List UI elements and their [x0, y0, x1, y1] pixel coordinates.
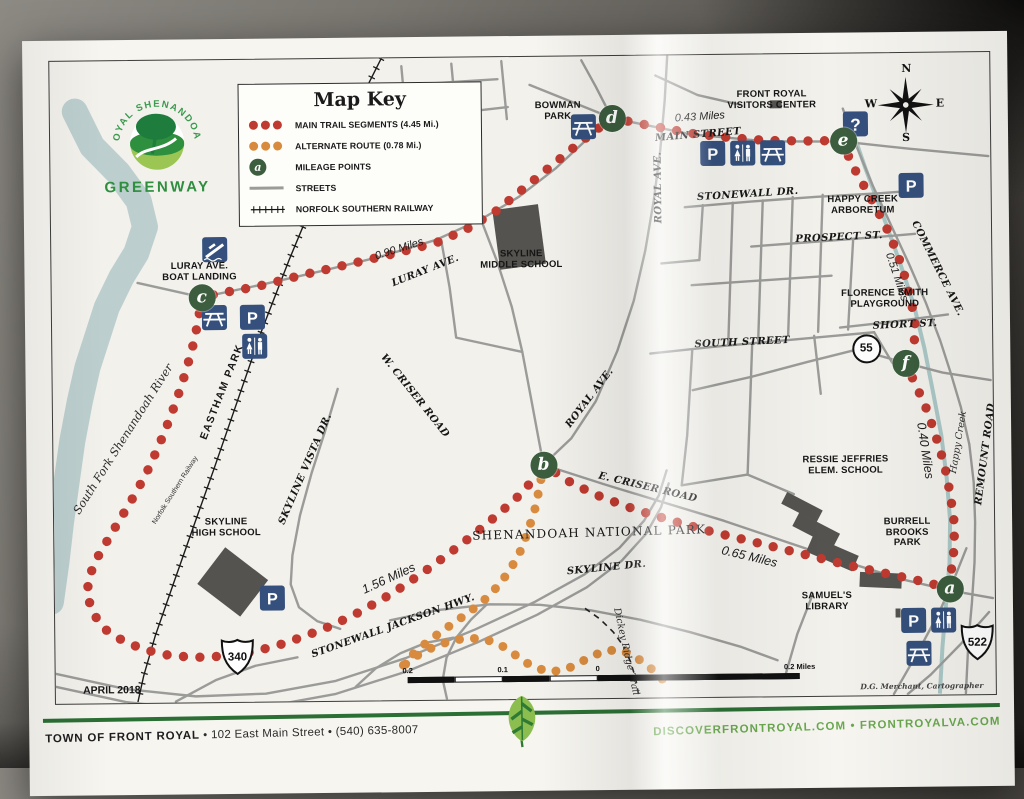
compass-s: S [902, 131, 910, 144]
map-label: SKYLINE HIGH SCHOOL [191, 517, 260, 539]
mileage-point-d: d [598, 104, 625, 131]
leaf-icon [500, 692, 543, 751]
parking-icon: P [259, 585, 284, 610]
map-key-item-label: ALTERNATE ROUTE (0.78 Mi.) [295, 139, 421, 150]
map-key-item-label: NORFOLK SOUTHERN RAILWAY [296, 202, 434, 213]
footer-address: TOWN OF FRONT ROYAL • 102 East Main Stre… [45, 724, 419, 745]
map-key-item: ALTERNATE ROUTE (0.78 Mi.) [249, 133, 471, 156]
footer-websites: DISCOVERFRONTROYAL.COM • FRONTROYALVA.CO… [653, 716, 1001, 739]
map-label: ROYAL AVE. [653, 152, 665, 224]
parking-icon: P [700, 140, 725, 165]
orange-dots-symbol [249, 141, 295, 150]
footer-town-name: TOWN OF FRONT ROYAL [45, 730, 200, 746]
map-key-item-label: MILEAGE POINTS [295, 161, 371, 172]
scale-bar: 0.20.100.2 Miles [408, 662, 800, 686]
mileage-point-e: e [829, 127, 856, 154]
map-key-title: Map Key [249, 87, 471, 111]
svg-text:340: 340 [228, 651, 247, 663]
map-label: APRIL 2018 [83, 685, 141, 697]
map-label: SKYLINE MIDDLE SCHOOL [480, 249, 563, 271]
svg-text:P: P [908, 612, 919, 630]
scale-bar-segment [503, 676, 550, 682]
map-label: FRONT ROYAL VISITORS CENTER [727, 89, 816, 111]
svg-text:P: P [905, 177, 916, 195]
boat-icon [202, 237, 227, 262]
svg-text:P: P [707, 145, 718, 163]
map-key-rows: MAIN TRAIL SEGMENTS (4.45 Mi.)ALTERNATE … [249, 112, 472, 219]
map-key-item-label: MAIN TRAIL SEGMENTS (4.45 Mi.) [295, 118, 439, 130]
restroom-icon [242, 333, 267, 358]
route-shield-55: 55 [852, 334, 881, 363]
parking-icon: P [898, 172, 923, 197]
map-key-item: MAIN TRAIL SEGMENTS (4.45 Mi.) [249, 112, 471, 135]
mileage-point-b: b [530, 451, 557, 478]
map-key-item: STREETS [249, 175, 471, 198]
scale-bar-label: 0.2 Miles [784, 662, 815, 671]
map-key-item-label: STREETS [296, 182, 337, 192]
parking-icon: P [901, 607, 926, 632]
picnic-icon [760, 140, 785, 165]
picnic-icon [906, 640, 931, 665]
street-line-symbol [250, 187, 296, 190]
parking-icon: P [239, 304, 264, 329]
compass-e: E [936, 97, 945, 110]
map-key: Map Key MAIN TRAIL SEGMENTS (4.45 Mi.)AL… [237, 81, 482, 227]
mileage-point-symbol: a [249, 158, 295, 175]
scale-bar-segment [408, 677, 455, 683]
scale-bar-label: 0.2 [402, 666, 413, 675]
map-frame: ROYAL SHENANDOAH GREENWAY Map Key MAIN T… [48, 51, 997, 705]
restroom-icon [730, 140, 755, 165]
logo-wordmark: GREENWAY [98, 178, 216, 196]
map-label: BURRELL BROOKS PARK [864, 517, 951, 550]
svg-text:522: 522 [968, 637, 987, 649]
paper-map: ROYAL SHENANDOAH GREENWAY Map Key MAIN T… [22, 31, 1015, 796]
footer-address-rest: • 102 East Main Street • (540) 635-8007 [200, 724, 419, 742]
brochure-footer: TOWN OF FRONT ROYAL • 102 East Main Stre… [29, 690, 1015, 799]
compass-w: W [865, 97, 877, 110]
svg-text:P: P [246, 309, 257, 327]
scale-bar-segment [598, 673, 800, 681]
map-label: SAMUEL'S LIBRARY [802, 591, 853, 613]
picnic-icon [570, 114, 595, 139]
route-shield-522: 522 [960, 623, 994, 661]
map-key-item: NORFOLK SOUTHERN RAILWAY [250, 196, 472, 219]
scale-bar-segment [550, 675, 598, 682]
red-dots-symbol [249, 120, 295, 129]
greenway-logo: ROYAL SHENANDOAH GREENWAY [97, 82, 258, 209]
scale-bar-label: 0.1 [497, 665, 508, 674]
mileage-point-f: f [892, 349, 919, 376]
mileage-point-c: c [188, 284, 215, 311]
compass-rose: N E S W [869, 69, 942, 142]
compass-n: N [901, 62, 911, 75]
map-key-item: aMILEAGE POINTS [249, 154, 471, 177]
map-label: RESSIE JEFFRIES ELEM. SCHOOL [802, 454, 888, 476]
map-label: FLORENCE SMITH PLAYGROUND [841, 288, 928, 310]
map-label: HAPPY CREEK ARBORETUM [827, 194, 898, 216]
scale-bar-segment [455, 676, 503, 683]
railway-line-symbol [250, 204, 296, 214]
map-canvas: ROYAL SHENANDOAH GREENWAY Map Key MAIN T… [49, 52, 996, 704]
photo-of-paper-map: { "logo": {"arc_text": "ROYAL SHENANDOAH… [0, 0, 1024, 768]
restroom-icon [931, 607, 956, 632]
scale-bar-label: 0 [595, 664, 599, 673]
svg-text:P: P [266, 590, 277, 608]
route-shield-340: 340 [220, 638, 254, 676]
mileage-point-a: a [936, 575, 963, 602]
map-label: LURAY AVE. BOAT LANDING [162, 261, 237, 283]
